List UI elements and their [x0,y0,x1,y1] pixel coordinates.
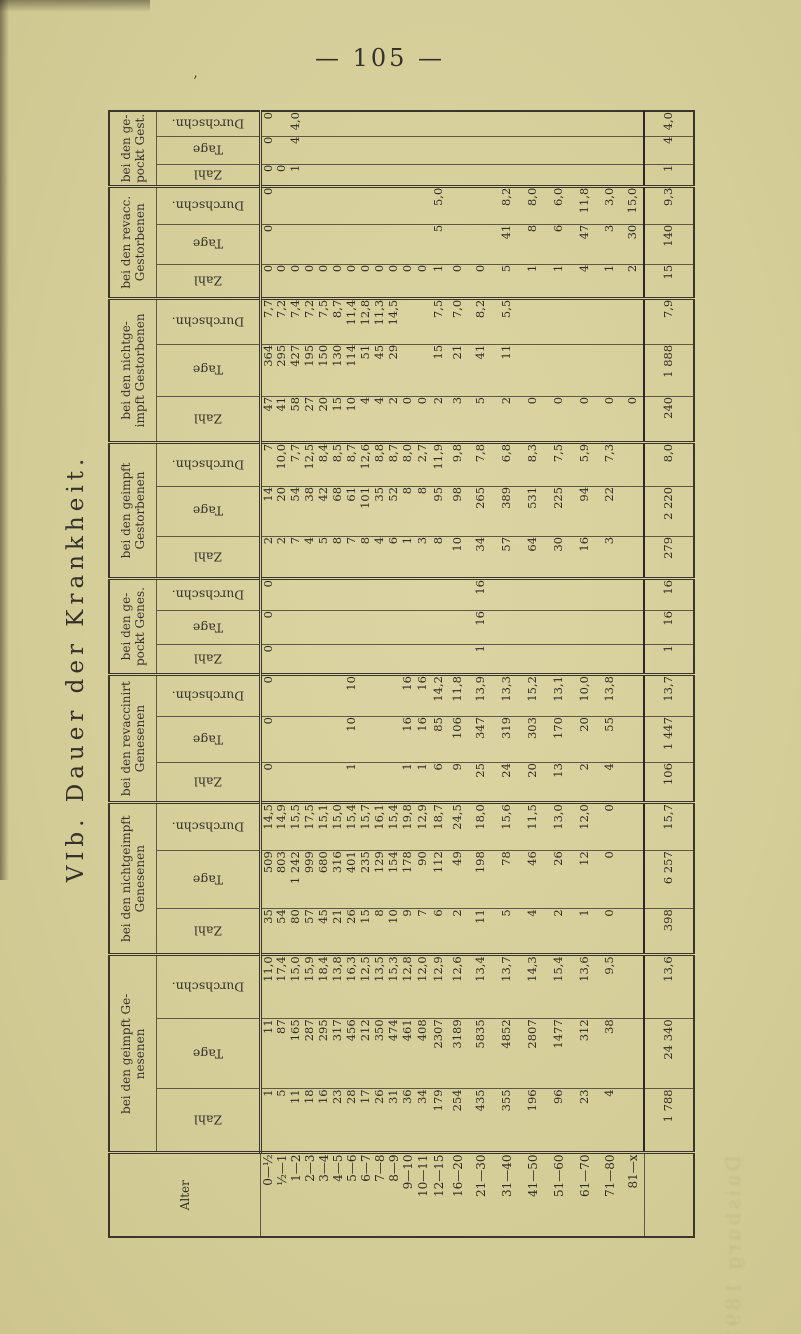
bleedthrough-ghost: Duisburg 1891 [698,560,768,1020]
data-cell-durchschn: 11,0 [261,955,276,1019]
data-cell-durchschn: 15,0 [331,803,345,851]
sub-header-durchschn: Durchschn. [157,298,261,344]
data-cell-zahl [275,645,289,675]
sub-header-tage: Tage [157,224,261,264]
data-cell-tage: 364 [261,344,276,396]
total-cell-durchschn: 7,9 [644,298,694,344]
data-cell-durchschn [468,111,494,136]
sub-header-tage: Tage [157,344,261,396]
data-cell-zahl: 0 [401,264,415,298]
data-cell-tage: 3189 [448,1019,468,1089]
data-cell-zahl: 1 [415,763,430,803]
data-cell-tage [289,611,303,645]
data-cell-durchschn: 7,5 [317,298,331,344]
data-cell-tage [345,136,359,164]
age-label: ½—1 [275,1153,289,1237]
data-cell-durchschn: 7,4 [289,298,303,344]
data-cell-zahl: 47 [261,396,276,442]
data-cell-tage: 20 [572,717,597,763]
age-label: 0—½ [261,1153,276,1237]
bleedthrough-text: Duisburg 1891 [721,1155,745,1334]
data-cell-zahl: 1 [546,264,572,298]
data-cell-durchschn [597,579,622,611]
data-cell-tage: 15 [430,344,448,396]
sub-header-zahl: Zahl [157,164,261,186]
data-cell-durchschn [572,579,597,611]
scan-edge-top [0,0,150,12]
data-cell-tage: 130 [331,344,345,396]
age-label: 16—20 [448,1153,468,1237]
data-cell-tage [572,344,597,396]
data-cell-durchschn: 13,8 [597,675,622,717]
data-cell-durchschn: 14,5 [261,803,276,851]
data-cell-durchschn: 18,4 [317,955,331,1019]
sub-header-durchschn: Durchschn. [157,675,261,717]
data-cell-zahl [373,164,387,186]
data-cell-zahl: 1 [520,264,546,298]
age-label: 8—9 [387,1153,401,1237]
age-label: 10—11 [415,1153,430,1237]
data-cell-durchschn [289,186,303,224]
data-cell-tage: 61 [345,486,359,536]
data-cell-durchschn [597,111,622,136]
total-cell-durchschn: 16 [644,579,694,611]
data-cell-tage: 21 [448,344,468,396]
data-cell-durchschn: 5,9 [572,442,597,486]
data-cell-tage [401,136,415,164]
data-cell-zahl: 196 [520,1089,546,1153]
data-cell-durchschn: 15,4 [387,803,401,851]
data-cell-tage [401,224,415,264]
data-cell-durchschn [572,298,597,344]
data-cell-tage [359,717,373,763]
data-cell-zahl: 8 [331,536,345,578]
data-cell-zahl: 2 [572,763,597,803]
data-cell-durchschn: 13,3 [494,675,520,717]
data-cell-zahl [622,645,644,675]
age-label: 31—40 [494,1153,520,1237]
data-cell-zahl: 1 [597,264,622,298]
data-cell-durchschn: 12,9 [415,803,430,851]
data-cell-zahl [317,164,331,186]
data-cell-tage [359,611,373,645]
age-label: 4—5 [331,1153,345,1237]
data-cell-tage: 11 [494,344,520,396]
data-cell-tage [373,224,387,264]
data-cell-tage: 22 [597,486,622,536]
data-cell-tage: 35 [373,486,387,536]
data-cell-durchschn: 10 [345,675,359,717]
data-cell-durchschn: 12,5 [303,442,317,486]
age-label: 9—10 [401,1153,415,1237]
data-cell-zahl: 15 [331,396,345,442]
total-cell-zahl: 398 [644,909,694,955]
data-cell-zahl: 0 [415,396,430,442]
data-cell-durchschn: 8,4 [317,442,331,486]
data-cell-durchschn [468,186,494,224]
data-cell-zahl: 24 [494,763,520,803]
data-cell-durchschn: 0 [261,111,276,136]
data-cell-durchschn: 8,3 [520,442,546,486]
data-cell-durchschn: 16 [468,579,494,611]
data-cell-tage: 16 [468,611,494,645]
data-cell-durchschn: 8,8 [373,442,387,486]
data-cell-durchschn [430,579,448,611]
data-cell-durchschn [387,675,401,717]
data-cell-zahl: 57 [303,909,317,955]
data-cell-zahl: 17 [359,1089,373,1153]
data-cell-zahl: 0 [373,264,387,298]
data-cell-durchschn [622,955,644,1019]
data-cell-durchschn [331,186,345,224]
age-label: 6—7 [359,1153,373,1237]
data-cell-zahl: 5 [494,264,520,298]
data-cell-zahl: 80 [289,909,303,955]
group-header: bei den ge-pockt Gest. [109,111,157,186]
data-cell-zahl: 0 [261,645,276,675]
data-cell-tage [387,224,401,264]
age-label: 51—60 [546,1153,572,1237]
data-cell-zahl: 179 [430,1089,448,1153]
data-cell-zahl [275,763,289,803]
total-cell-durchschn: 15,7 [644,803,694,851]
data-cell-tage [303,136,317,164]
total-cell-durchschn: 13,6 [644,955,694,1019]
data-cell-durchschn [289,579,303,611]
age-label: 21—30 [468,1153,494,1237]
data-cell-durchschn: 15,6 [494,803,520,851]
data-cell-tage: 295 [275,344,289,396]
data-cell-zahl [622,763,644,803]
data-cell-zahl [546,164,572,186]
data-cell-durchschn [331,111,345,136]
table-block: Alterbei den geimpft Ge-nesenenbei den n… [108,98,688,1238]
data-cell-zahl: 2 [387,396,401,442]
data-cell-durchschn: 12,0 [572,803,597,851]
data-cell-tage: 4 [289,136,303,164]
data-cell-tage: 52 [387,486,401,536]
data-cell-durchschn [317,186,331,224]
data-cell-zahl: 15 [359,909,373,955]
data-cell-tage: 150 [317,344,331,396]
data-cell-zahl [546,645,572,675]
data-cell-durchschn [289,675,303,717]
data-cell-tage [520,611,546,645]
data-cell-durchschn: 0 [261,186,276,224]
total-cell-zahl: 1 [644,164,694,186]
data-cell-durchschn: 11,4 [345,298,359,344]
data-cell-tage [546,611,572,645]
data-cell-durchschn: 11,3 [373,298,387,344]
data-cell-tage [345,611,359,645]
data-cell-zahl [373,645,387,675]
data-cell-tage: 78 [494,851,520,909]
data-cell-zahl: 0 [468,264,494,298]
data-cell-durchschn: 7,5 [546,442,572,486]
data-cell-zahl: 4 [597,763,622,803]
data-cell-tage: 101 [359,486,373,536]
data-cell-tage: 8 [415,486,430,536]
data-cell-zahl: 20 [520,763,546,803]
data-cell-zahl [317,645,331,675]
total-cell-zahl: 15 [644,264,694,298]
data-cell-tage: 20 [275,486,289,536]
data-cell-tage: 312 [572,1019,597,1089]
data-cell-zahl: 2 [546,909,572,955]
total-cell-tage: 6 257 [644,851,694,909]
data-cell-zahl: 2 [622,264,644,298]
data-cell-durchschn: 7,8 [468,442,494,486]
data-cell-tage [317,136,331,164]
data-cell-tage: 16 [401,717,415,763]
total-cell-tage: 1 888 [644,344,694,396]
data-cell-durchschn [520,579,546,611]
data-cell-zahl: 5 [494,909,520,955]
data-cell-zahl [303,763,317,803]
data-cell-zahl: 2 [261,536,276,578]
data-cell-durchschn [359,111,373,136]
data-cell-durchschn [622,675,644,717]
data-cell-zahl [494,645,520,675]
data-cell-durchschn: 5,5 [494,298,520,344]
data-cell-durchschn [448,111,468,136]
data-cell-zahl: 6 [430,763,448,803]
data-cell-durchschn: 13,5 [373,955,387,1019]
data-cell-durchschn [622,111,644,136]
data-cell-durchschn [494,111,520,136]
total-cell-durchschn: 9,3 [644,186,694,224]
age-label: 12—15 [430,1153,448,1237]
data-cell-tage [546,136,572,164]
data-cell-durchschn: 13,7 [494,955,520,1019]
data-cell-zahl: 30 [546,536,572,578]
age-label: 71—80 [597,1153,622,1237]
data-cell-zahl [373,763,387,803]
data-cell-durchschn: 15,4 [345,803,359,851]
data-cell-tage [520,136,546,164]
data-cell-tage: 2807 [520,1019,546,1089]
table-title-block: VIb. Dauer der Krankheit. [46,98,106,1238]
data-cell-zahl [401,645,415,675]
data-cell-zahl [468,164,494,186]
data-cell-durchschn: 8,7 [387,442,401,486]
data-cell-zahl [289,763,303,803]
data-cell-tage: 265 [468,486,494,536]
data-cell-zahl: 0 [331,264,345,298]
data-cell-durchschn [373,579,387,611]
data-cell-zahl: 10 [345,396,359,442]
data-cell-zahl: 13 [546,763,572,803]
data-cell-tage: 350 [373,1019,387,1089]
data-cell-tage: 98 [448,486,468,536]
data-cell-zahl [359,645,373,675]
data-cell-zahl: 0 [597,909,622,955]
data-cell-tage [597,344,622,396]
data-cell-durchschn: 13,8 [331,955,345,1019]
data-cell-durchschn [622,803,644,851]
data-cell-durchschn: 0 [261,675,276,717]
data-cell-zahl: 57 [494,536,520,578]
data-cell-durchschn: 16,1 [373,803,387,851]
data-cell-tage: 195 [303,344,317,396]
data-cell-tage [317,611,331,645]
data-cell-zahl: 0 [520,396,546,442]
sub-header-zahl: Zahl [157,763,261,803]
data-cell-tage [345,224,359,264]
data-cell-zahl [401,164,415,186]
data-cell-durchschn [373,186,387,224]
data-cell-tage [275,136,289,164]
sub-header-durchschn: Durchschn. [157,186,261,224]
data-cell-zahl: 0 [303,264,317,298]
total-cell-zahl: 106 [644,763,694,803]
data-cell-tage: 317 [331,1019,345,1089]
data-cell-durchschn: 5,0 [430,186,448,224]
data-cell-zahl: 7 [415,909,430,955]
data-cell-durchschn: 13,0 [546,803,572,851]
data-cell-zahl: 4 [373,396,387,442]
data-cell-tage [415,224,430,264]
data-cell-tage [401,611,415,645]
total-cell-tage: 24 340 [644,1019,694,1089]
data-cell-durchschn [373,675,387,717]
data-cell-zahl: 0 [345,264,359,298]
data-cell-durchschn [415,579,430,611]
data-cell-zahl: 26 [345,909,359,955]
data-cell-zahl: 1 [401,536,415,578]
data-cell-durchschn [275,111,289,136]
data-cell-zahl: 2 [448,909,468,955]
data-cell-durchschn: 7,5 [430,298,448,344]
data-cell-durchschn: 6,0 [546,186,572,224]
data-cell-durchschn [303,111,317,136]
data-cell-durchschn [401,579,415,611]
age-label: 7—8 [373,1153,387,1237]
data-cell-durchschn: 15,4 [546,955,572,1019]
data-cell-tage [373,136,387,164]
data-cell-zahl [597,164,622,186]
table-title: VIb. Dauer der Krankheit. [63,454,89,883]
data-cell-tage: 38 [303,486,317,536]
data-cell-tage: 456 [345,1019,359,1089]
data-cell-tage: 1477 [546,1019,572,1089]
age-label: 61—70 [572,1153,597,1237]
data-cell-zahl: 2 [494,396,520,442]
data-cell-durchschn: 18,7 [430,803,448,851]
sub-header-tage: Tage [157,1019,261,1089]
data-cell-tage [401,344,415,396]
sub-header-zahl: Zahl [157,1089,261,1153]
data-cell-tage: 170 [546,717,572,763]
data-cell-tage: 0 [261,136,276,164]
data-cell-tage [303,717,317,763]
data-cell-durchschn: 13,9 [468,675,494,717]
data-cell-zahl: 34 [468,536,494,578]
data-cell-tage [622,717,644,763]
data-cell-zahl: 7 [289,536,303,578]
total-cell-zahl: 240 [644,396,694,442]
data-cell-durchschn [331,675,345,717]
scanned-page: ’ — 105 — Duisburg 1891 VIb. Dauer der K… [0,0,801,1334]
data-cell-durchschn: 9,5 [597,955,622,1019]
data-cell-zahl: 6 [430,909,448,955]
total-cell-durchschn: 13,7 [644,675,694,717]
data-cell-zahl: 9 [401,909,415,955]
data-cell-durchschn: 17,4 [275,955,289,1019]
data-cell-tage [415,344,430,396]
data-cell-zahl: 25 [468,763,494,803]
group-header: bei den revaccinirtGenesenen [109,675,157,803]
age-label: 5—6 [345,1153,359,1237]
data-cell-durchschn [494,579,520,611]
data-cell-zahl [622,164,644,186]
data-cell-tage [468,224,494,264]
data-cell-durchschn [448,579,468,611]
data-cell-zahl: 355 [494,1089,520,1153]
data-cell-zahl: 18 [303,1089,317,1153]
data-cell-durchschn [303,186,317,224]
data-cell-zahl: 26 [373,1089,387,1153]
data-cell-zahl: 9 [448,763,468,803]
data-cell-durchschn [520,111,546,136]
data-cell-zahl: 23 [331,1089,345,1153]
data-cell-zahl: 58 [289,396,303,442]
data-cell-durchschn [622,442,644,486]
data-cell-tage [448,224,468,264]
data-cell-tage [387,136,401,164]
sub-header-tage: Tage [157,851,261,909]
data-cell-durchschn: 12,0 [415,955,430,1019]
total-cell-zahl: 1 [644,645,694,675]
data-cell-tage [430,136,448,164]
data-cell-zahl [430,164,448,186]
data-cell-durchschn: 7,0 [448,298,468,344]
data-cell-tage: 999 [303,851,317,909]
data-cell-tage: 2307 [430,1019,448,1089]
data-cell-zahl: 36 [401,1089,415,1153]
data-cell-tage: 287 [303,1019,317,1089]
data-cell-durchschn: 18,0 [468,803,494,851]
data-cell-tage [317,717,331,763]
data-cell-tage: 303 [520,717,546,763]
data-cell-durchschn [345,186,359,224]
data-cell-tage [520,344,546,396]
data-cell-zahl: 10 [387,909,401,955]
data-cell-durchschn: 13,4 [468,955,494,1019]
data-cell-zahl: 1 [261,1089,276,1153]
total-cell-zahl: 1 788 [644,1089,694,1153]
data-cell-durchschn [546,579,572,611]
data-cell-tage: 389 [494,486,520,536]
data-cell-tage [622,136,644,164]
data-cell-durchschn: 13,1 [546,675,572,717]
data-cell-durchschn: 15,1 [317,803,331,851]
data-cell-durchschn [448,186,468,224]
data-cell-tage [387,717,401,763]
data-cell-durchschn: 8,0 [401,442,415,486]
data-cell-zahl [331,164,345,186]
data-cell-durchschn: 7,2 [303,298,317,344]
data-cell-tage [415,611,430,645]
data-cell-durchschn: 7,7 [289,442,303,486]
data-cell-tage [572,136,597,164]
data-cell-zahl: 1 [345,763,359,803]
data-cell-zahl: 0 [289,264,303,298]
data-cell-durchschn: 7,2 [275,298,289,344]
data-cell-tage [622,851,644,909]
data-cell-zahl [415,645,430,675]
data-cell-tage: 42 [317,486,331,536]
